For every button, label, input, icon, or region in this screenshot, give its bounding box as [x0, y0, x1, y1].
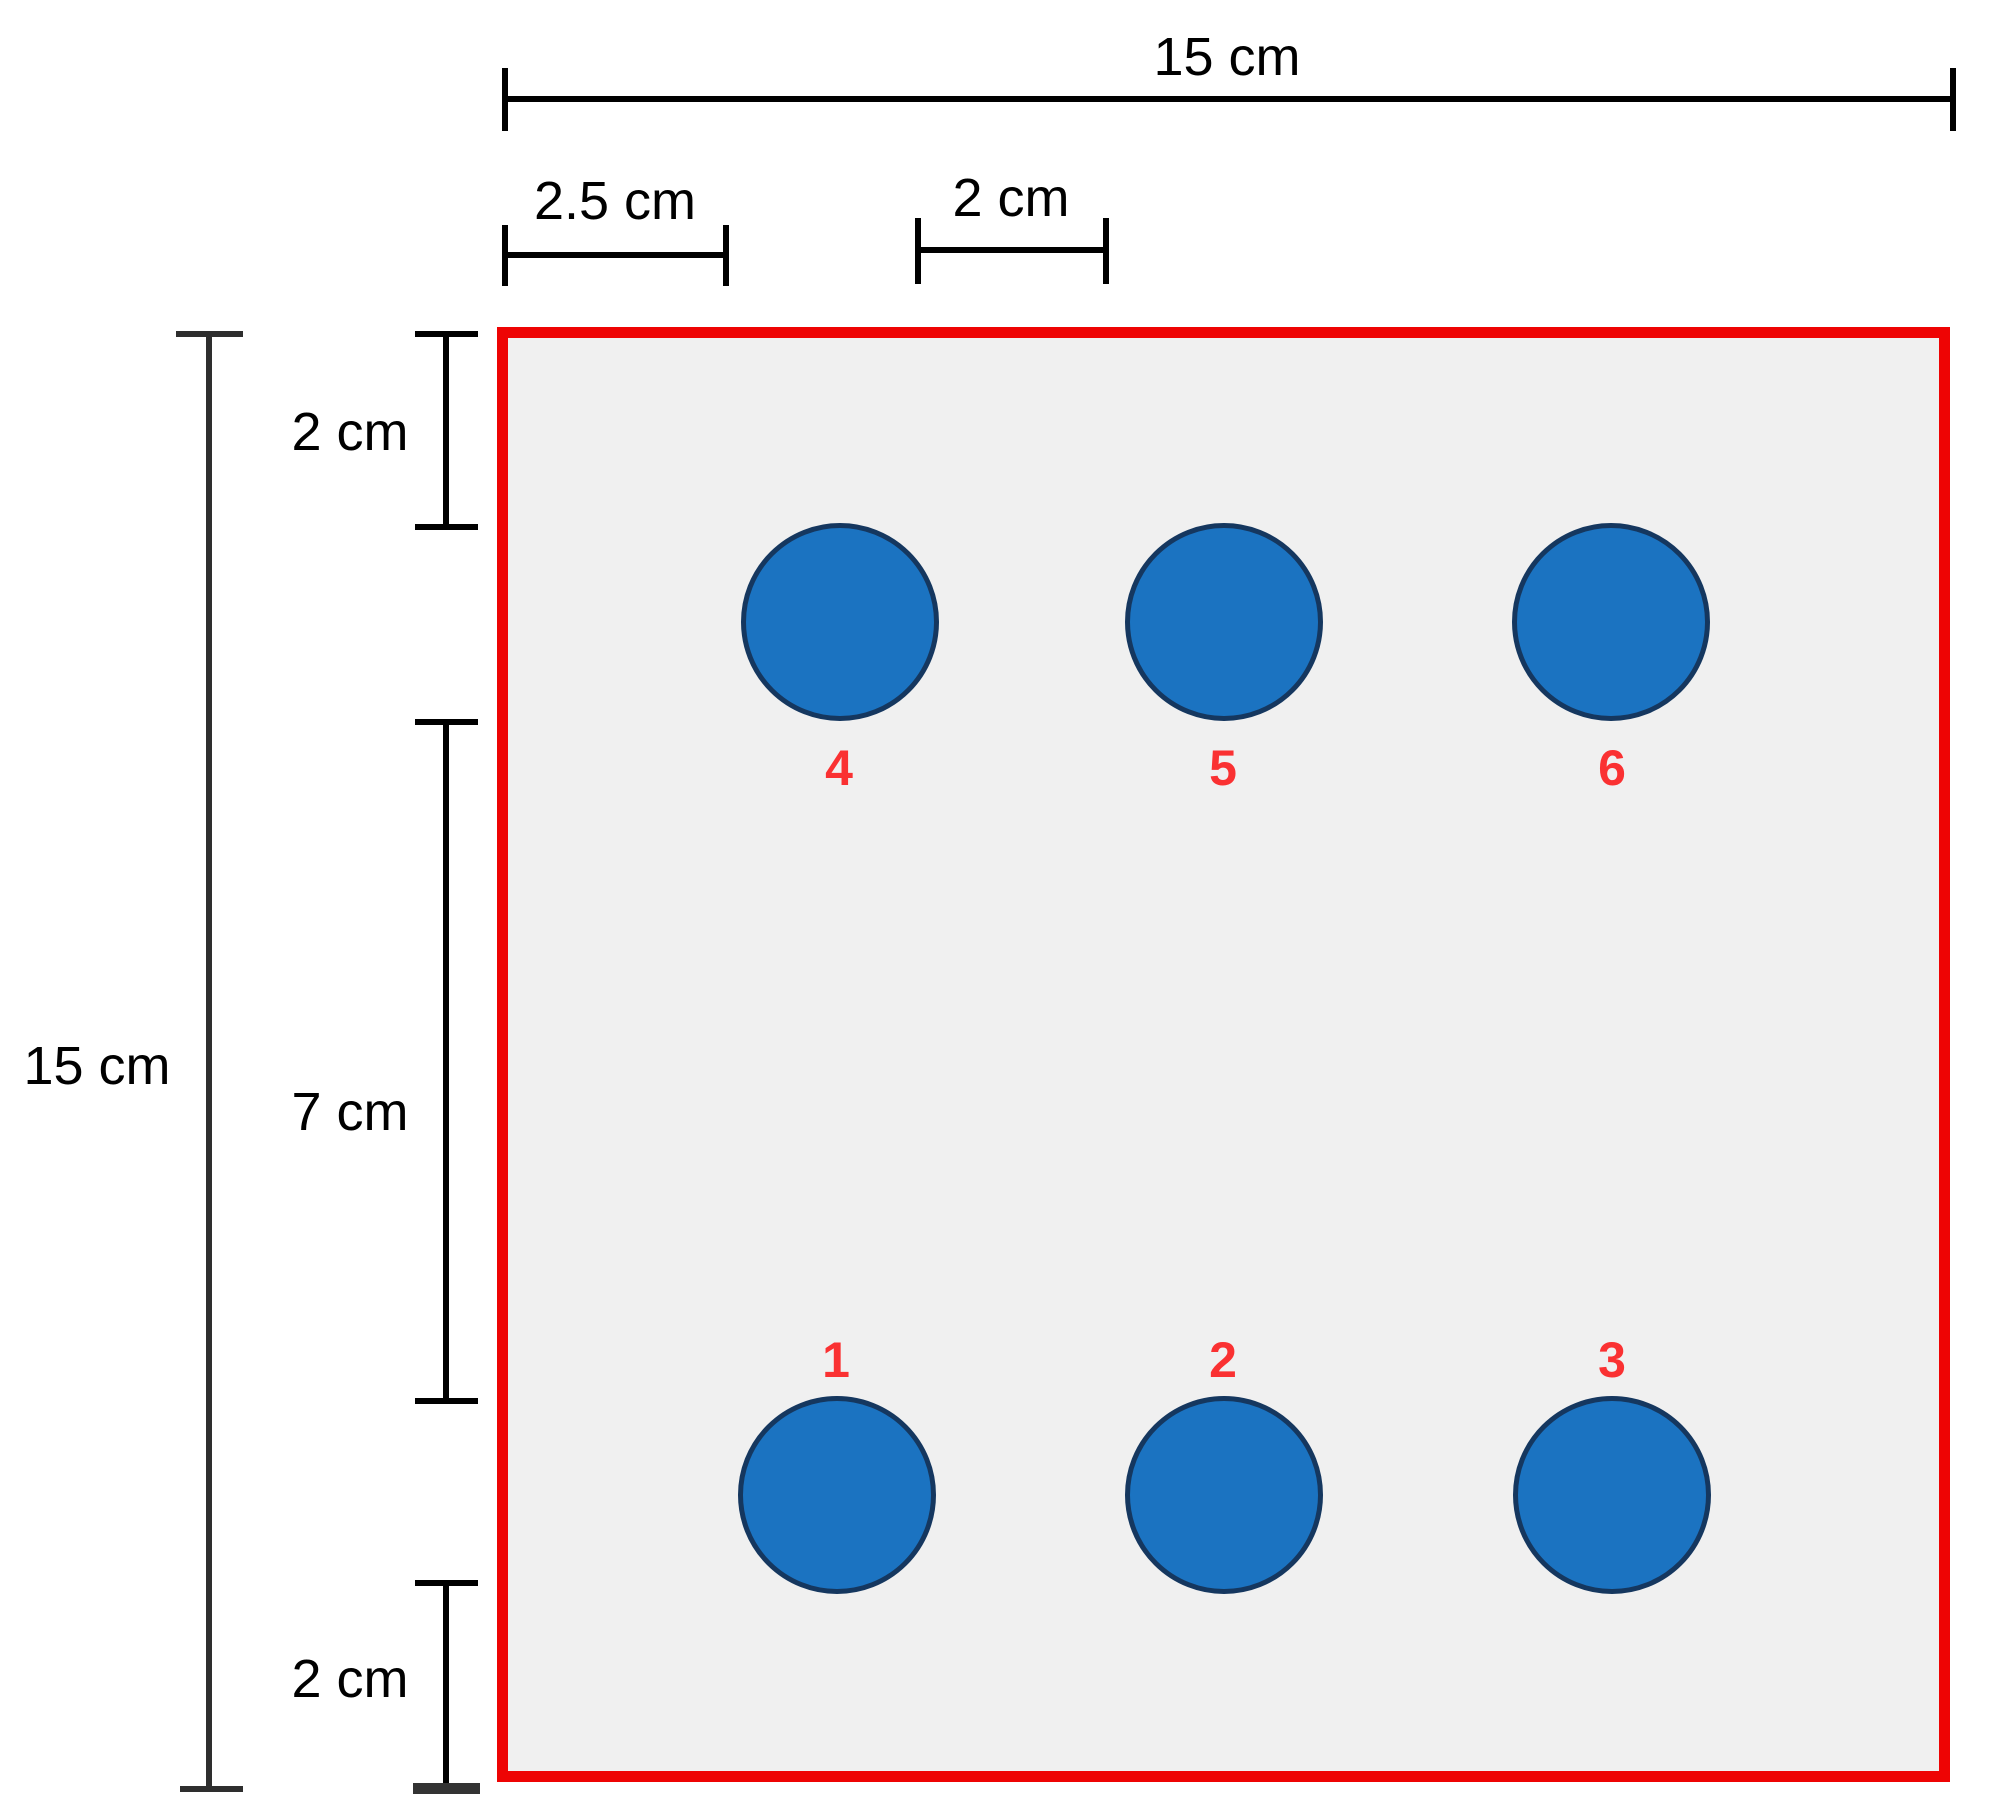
svg-text:2 cm: 2 cm [952, 168, 1069, 228]
svg-text:3: 3 [1598, 1332, 1626, 1388]
svg-text:4: 4 [825, 740, 853, 796]
svg-text:2 cm: 2 cm [291, 402, 408, 462]
svg-text:7 cm: 7 cm [291, 1082, 408, 1142]
svg-text:15 cm: 15 cm [23, 1036, 170, 1096]
svg-text:2.5 cm: 2.5 cm [534, 171, 696, 231]
svg-text:5: 5 [1209, 740, 1237, 796]
svg-text:1: 1 [822, 1332, 850, 1388]
svg-text:6: 6 [1598, 740, 1626, 796]
svg-text:2 cm: 2 cm [291, 1649, 408, 1709]
svg-text:15 cm: 15 cm [1153, 27, 1300, 87]
svg-text:2: 2 [1209, 1332, 1237, 1388]
